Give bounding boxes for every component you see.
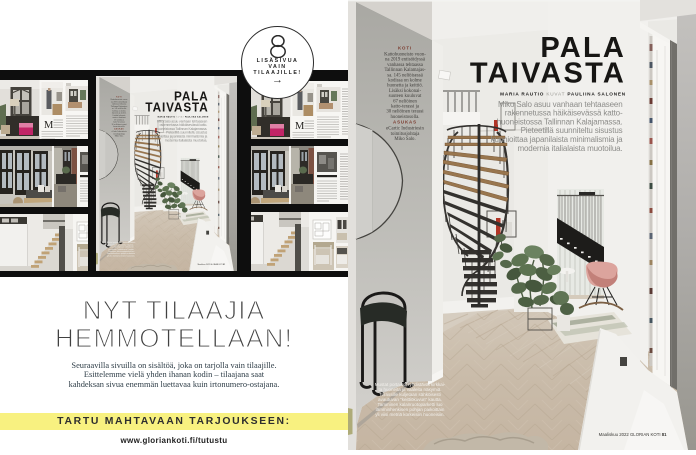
svg-text:kunnioittaa japanilaista minim: kunnioittaa japanilaista minimalismia ja [491, 135, 624, 144]
svg-text:huoneistossa Tallinnan Kalajam: huoneistossa Tallinnan Kalajamassa. [497, 117, 623, 126]
svg-text:KOTI: KOTI [398, 46, 412, 51]
svg-text:rakennetussa häikäisevässä kat: rakennetussa häikäisevässä katto- [505, 109, 623, 118]
svg-text:TAIVASTA: TAIVASTA [470, 58, 626, 90]
svg-text:modernia italialaista muotoilu: modernia italialaista muotoilua. [517, 144, 622, 153]
svg-text:Maaliskuu 2022 GLORIAN KOTI 81: Maaliskuu 2022 GLORIAN KOTI 81 [599, 432, 667, 437]
svg-text:MARIA RAUTIO KUVAT PAULIINA SA: MARIA RAUTIO KUVAT PAULIINA SALONEN [500, 92, 626, 97]
svg-text:Miko Salo asuu vanhaan tehtaas: Miko Salo asuu vanhaan tehtaaseen [498, 100, 622, 109]
svg-text:yli viisi metriä korkeisiin hu: yli viisi metriä korkeisiin huoneisiin. [375, 412, 445, 417]
svg-text:Miko Salo.: Miko Salo. [394, 137, 415, 142]
svg-text:Pieteetillä suunniteltu sisust: Pieteetillä suunniteltu sisustus [521, 126, 623, 135]
svg-text:ASUKAS: ASUKAS [393, 120, 417, 125]
